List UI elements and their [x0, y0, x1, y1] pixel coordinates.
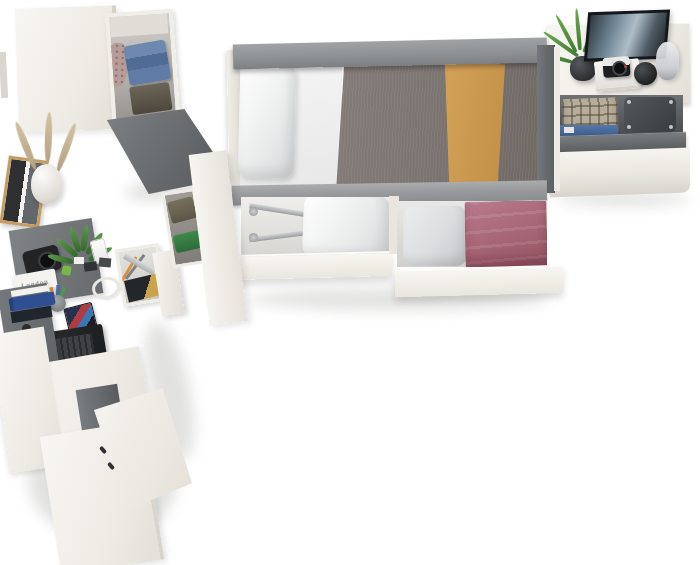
round-speaker	[634, 62, 657, 85]
artwork-image	[587, 13, 667, 59]
memory-card	[83, 261, 97, 272]
metal-wheel	[249, 207, 258, 216]
case-corner	[627, 125, 631, 129]
case-corner	[669, 125, 673, 129]
fern-frond	[574, 8, 582, 50]
plum-blanket	[464, 201, 547, 267]
bed-pillow	[238, 63, 297, 178]
underbed-drawer1-interior	[241, 197, 389, 257]
pampas-plume	[54, 122, 78, 173]
wall-edge-sliver	[0, 52, 8, 98]
pampas-grass	[22, 108, 82, 208]
camera-lens	[36, 250, 58, 272]
case-corner	[627, 100, 631, 104]
bed-foot-edge	[554, 47, 560, 191]
white-vase	[31, 164, 62, 204]
gray-case	[624, 97, 676, 132]
nightstand-body	[549, 148, 690, 198]
underbed-drawer1-front	[234, 251, 392, 280]
metal-wheel	[249, 233, 258, 242]
nightstand-drawer-interior	[556, 95, 683, 137]
glass-lamp	[656, 42, 679, 80]
green-chip	[61, 265, 72, 276]
pampas-plume	[44, 112, 53, 164]
olive-garment	[167, 196, 198, 224]
vintage-camera	[602, 56, 630, 78]
bed-mustard-blanket	[441, 62, 505, 191]
drawer2-pillow	[403, 206, 467, 266]
underbed-drawer2-interior	[397, 201, 547, 267]
white-card	[74, 257, 84, 264]
jeans-label	[564, 127, 574, 133]
bed-foot-panel	[537, 45, 555, 193]
compartment-shelf	[109, 13, 168, 37]
underbed-drawer2-front	[395, 265, 563, 297]
dark-folded-clothes	[129, 82, 173, 115]
bedroom-top-view-render: London	[0, 0, 700, 565]
bed-duvet	[336, 61, 546, 192]
folded-jeans-stack	[123, 39, 171, 86]
memory-card	[99, 257, 112, 267]
case-corner	[669, 100, 673, 104]
drawer1-pillow	[302, 197, 389, 257]
